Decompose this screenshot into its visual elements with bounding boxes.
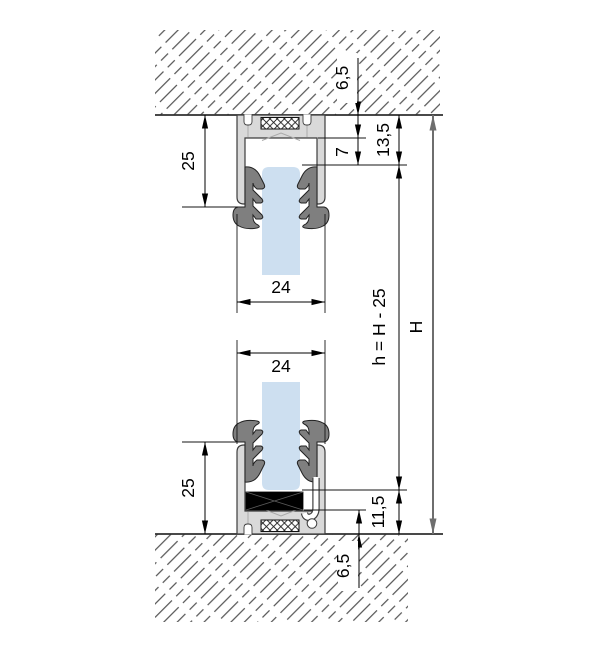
arrow xyxy=(202,442,208,456)
arrow xyxy=(312,299,326,305)
glass-partition-section-drawing: 25 6,5 7 13,5 h = H - 25 H 24 24 25 11,5… xyxy=(0,0,600,650)
setting-block xyxy=(246,492,303,510)
technical-drawing-canvas: 25 6,5 7 13,5 h = H - 25 H 24 24 25 11,5… xyxy=(0,0,600,650)
dim-bottom-recess: 6,5 xyxy=(333,554,353,578)
dim-top-clearance: 7 xyxy=(332,147,352,157)
screw-channel-circle xyxy=(307,519,317,529)
arrow xyxy=(396,165,402,179)
dim-bottom-profile-width: 24 xyxy=(271,356,291,376)
dim-top-recess: 6,5 xyxy=(332,66,352,90)
arrow xyxy=(237,350,251,356)
dim-glass-height: h = H - 25 xyxy=(369,288,389,365)
dim-top-profile-width: 24 xyxy=(271,277,291,297)
arrow xyxy=(202,115,208,129)
arrow xyxy=(396,152,402,166)
arrow xyxy=(356,510,362,524)
arrow xyxy=(202,521,208,535)
dim-overall-height: H xyxy=(406,321,426,334)
dim-bottom-total-inset: 11,5 xyxy=(368,496,388,529)
dim-bottom-profile-height: 25 xyxy=(178,478,198,497)
arrow xyxy=(355,152,361,166)
arrow xyxy=(396,521,402,535)
drainage-screw-slot xyxy=(305,477,317,528)
arrow xyxy=(396,490,402,504)
dim-top-total-inset: 13,5 xyxy=(373,123,393,157)
glass-pane-top xyxy=(262,167,300,275)
arrow xyxy=(355,125,361,139)
mounting-tape-crosshatch xyxy=(261,118,299,130)
arrow xyxy=(202,194,208,208)
arrow xyxy=(396,115,402,129)
screw-groove-left xyxy=(244,114,252,125)
arrow xyxy=(312,350,326,356)
glass-pane-bottom xyxy=(262,382,300,490)
floor-hatch xyxy=(155,534,408,622)
arrow xyxy=(237,299,251,305)
arrow xyxy=(430,115,437,131)
arrow xyxy=(396,477,402,491)
arrow xyxy=(430,519,437,535)
screw-groove-right-top xyxy=(303,114,311,125)
ceiling-hatch xyxy=(155,30,440,115)
dim-top-profile-height: 25 xyxy=(178,151,198,170)
